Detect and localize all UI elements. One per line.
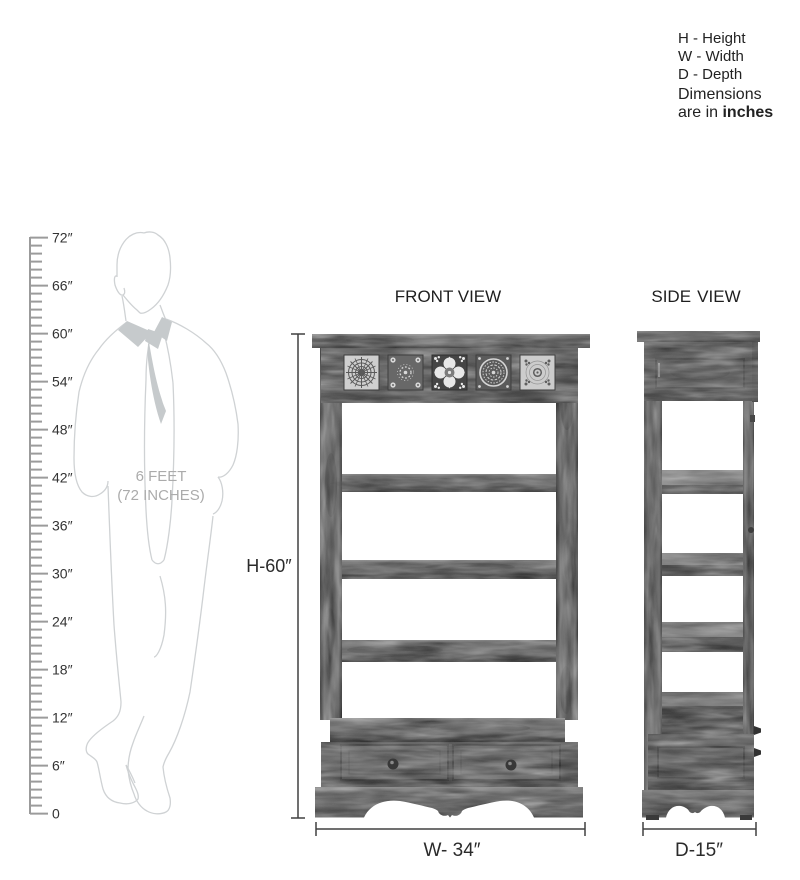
svg-text:36″: 36″ [52,518,73,534]
svg-text:FRONT VIEW: FRONT VIEW [395,287,501,306]
svg-text:24″: 24″ [52,614,73,630]
svg-text:0: 0 [52,806,60,822]
svg-text:48″: 48″ [52,422,73,438]
svg-text:D-15″: D-15″ [675,840,723,861]
svg-text:30″: 30″ [52,566,73,582]
svg-text:H-60″: H-60″ [246,556,292,576]
svg-text:42″: 42″ [52,470,73,486]
svg-text:H - Height: H - Height [678,30,746,47]
svg-text:Dimensions: Dimensions [678,86,762,103]
svg-text:are in inches: are in inches [678,104,773,121]
svg-text:6″: 6″ [52,758,65,774]
svg-text:54″: 54″ [52,374,73,390]
svg-text:(72 INCHES): (72 INCHES) [117,487,205,504]
svg-text:66″: 66″ [52,278,73,294]
svg-text:W- 34″: W- 34″ [423,840,480,861]
svg-text:6 FEET: 6 FEET [136,468,187,485]
svg-text:60″: 60″ [52,326,73,342]
svg-text:18″: 18″ [52,662,73,678]
svg-text:12″: 12″ [52,710,73,726]
svg-text:D - Depth: D - Depth [678,66,742,83]
svg-text:72″: 72″ [52,230,73,246]
svg-text:W - Width: W - Width [678,48,744,65]
svg-text:SIDE VIEW: SIDE VIEW [651,287,740,306]
